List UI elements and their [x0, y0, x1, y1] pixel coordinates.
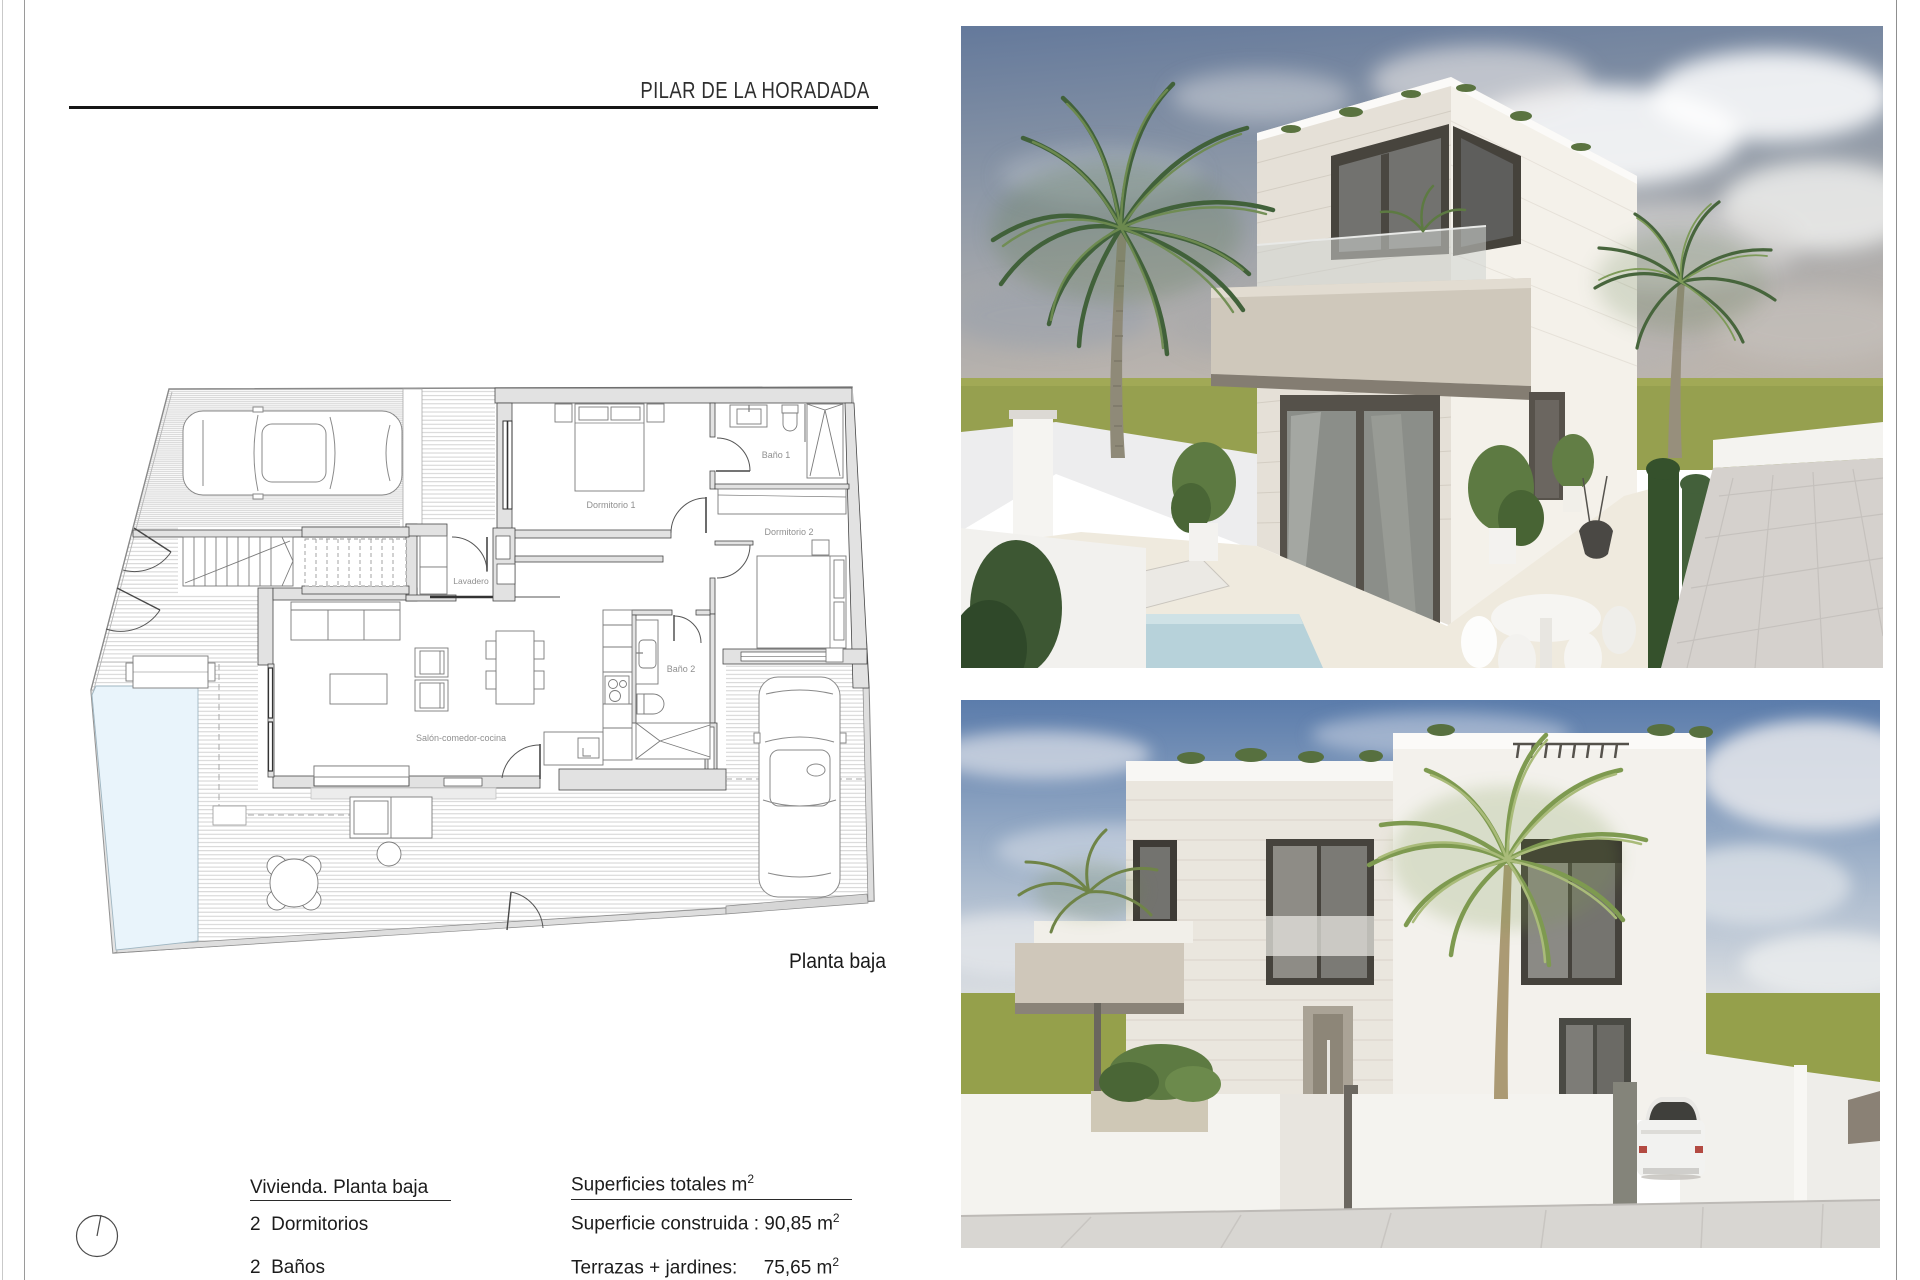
svg-text:Dormitorio 2: Dormitorio 2 — [764, 527, 813, 537]
svg-text:Lavadero: Lavadero — [453, 576, 489, 586]
svg-text:Baño 2: Baño 2 — [667, 664, 696, 674]
svg-text:Planta baja: Planta baja — [789, 949, 886, 973]
svg-text:Dormitorio 1: Dormitorio 1 — [586, 500, 635, 510]
svg-text:Baño 1: Baño 1 — [762, 450, 791, 460]
svg-text:Salón-comedor-cocina: Salón-comedor-cocina — [416, 733, 506, 743]
